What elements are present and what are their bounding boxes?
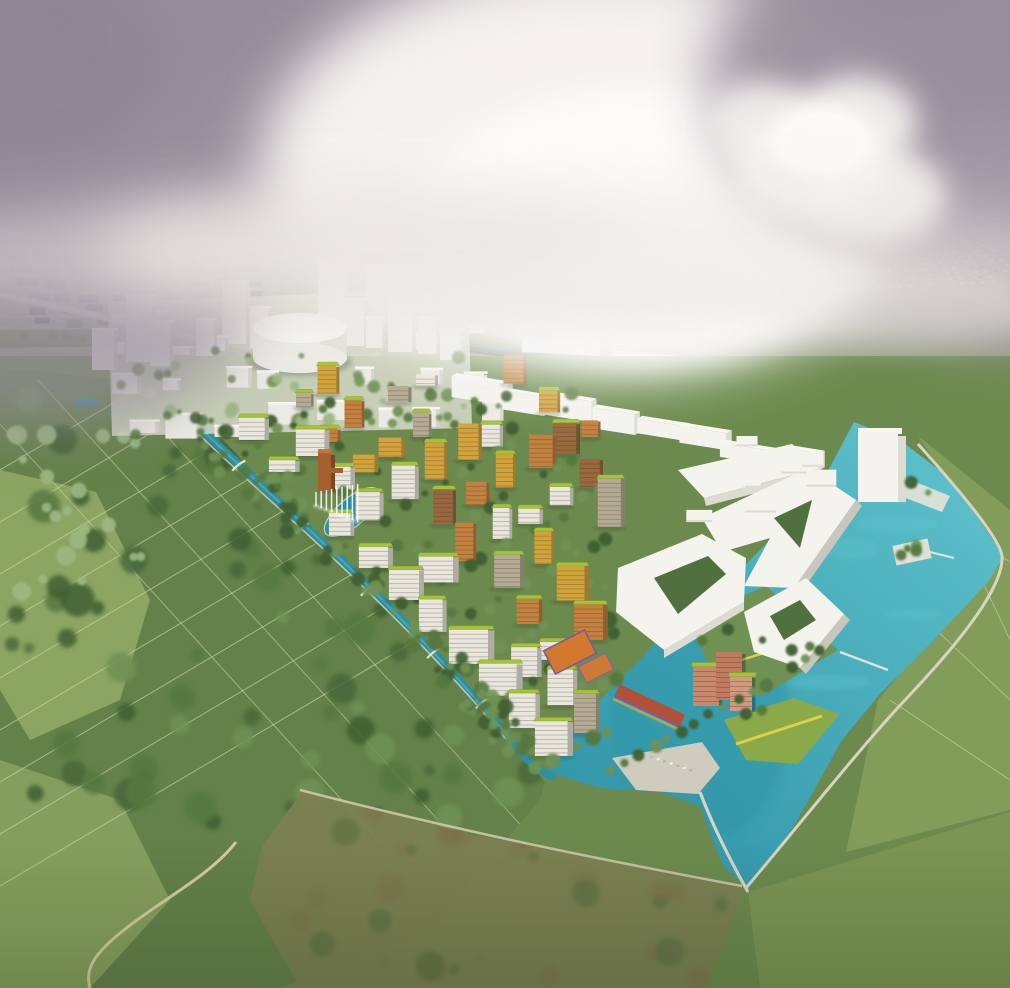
canal-tree (464, 699, 473, 708)
building-floor-line (269, 469, 295, 470)
tree-cluster (313, 657, 327, 671)
tree-cluster (280, 560, 295, 575)
green-roof (517, 505, 543, 509)
tree-cluster (414, 719, 434, 739)
building-floor-line (557, 593, 585, 594)
green-roof (388, 566, 424, 570)
massing-block-side (440, 371, 443, 384)
building-floor-line (455, 527, 473, 528)
district-tree (484, 604, 495, 615)
building-floor-line (379, 442, 402, 443)
canal-tree (259, 474, 266, 481)
green-roof (516, 595, 543, 599)
district-tree (498, 491, 508, 501)
building-floor-line (392, 483, 415, 484)
building-floor-line (392, 488, 415, 489)
building-floor-line (458, 432, 478, 433)
building-floor-line (239, 435, 265, 436)
building-floor-line (455, 545, 473, 546)
building-side-shade (568, 722, 573, 756)
building-floor-line (598, 523, 621, 524)
canal-tree (476, 690, 486, 700)
water-sparkle (854, 514, 939, 532)
waterfront-tree (814, 645, 825, 656)
building-floor-line (493, 512, 510, 513)
massing-block-roof (257, 370, 279, 373)
building-floor-line (345, 409, 362, 410)
building-floor-line (547, 696, 573, 697)
pale-tree (96, 429, 110, 443)
district-tree (422, 490, 429, 497)
building-floor-line (598, 519, 621, 520)
building-side-shade (621, 480, 625, 527)
tree-cluster (365, 733, 395, 763)
building (413, 412, 429, 436)
building-floor-line (413, 430, 429, 431)
district-tree (560, 540, 572, 552)
street-tree (176, 409, 181, 414)
building-floor-line (534, 549, 551, 550)
building-floor-line (425, 460, 445, 461)
tree-cluster (229, 528, 252, 551)
building-floor-line (518, 522, 539, 523)
pale-tree (130, 438, 140, 448)
building (579, 459, 599, 488)
building-floor-line (518, 513, 539, 514)
district-tree (351, 572, 365, 586)
building-floor-line (539, 408, 557, 409)
building-floor-line (416, 379, 435, 380)
building-floor-line (239, 422, 265, 423)
building-floor-line (539, 395, 557, 396)
district-tree (607, 627, 620, 640)
waterfront-tree (734, 694, 744, 704)
canal-tree (436, 675, 450, 689)
tree-cluster (23, 643, 34, 654)
building-floor-line (535, 730, 568, 731)
building-floor-line (547, 678, 573, 679)
green-roof (355, 488, 384, 492)
waterfront-tree (776, 668, 790, 682)
building-floor-line (494, 564, 520, 565)
building-floor-line (317, 384, 336, 385)
building-floor-line (345, 414, 362, 415)
building-floor-line (479, 677, 517, 678)
building-floor-line (458, 459, 478, 460)
building-floor-line (529, 439, 553, 440)
massing-block-roof (355, 366, 374, 369)
white-roof-volume (807, 470, 837, 487)
building-floor-line (496, 472, 513, 473)
building-floor-line (353, 459, 375, 460)
pale-tree (12, 582, 31, 601)
district-tree (476, 404, 488, 416)
street-tree (272, 374, 282, 384)
building-floor-line (535, 739, 568, 740)
building-floor-line (493, 521, 510, 522)
building-floor-line (353, 464, 375, 465)
building-floor-line (413, 435, 429, 436)
building-floor-line (517, 608, 539, 609)
salmon-floor-line (730, 706, 752, 707)
canal-tree (253, 479, 259, 485)
canal-tree (319, 553, 332, 566)
tree-cluster (163, 464, 177, 478)
tree-cluster (82, 771, 105, 794)
building-floor-line (413, 421, 429, 422)
building-floor-line (379, 456, 402, 457)
building-floor-line (535, 743, 568, 744)
tree-cluster (190, 648, 203, 661)
tree-cluster (8, 606, 25, 623)
district-tree (539, 622, 549, 632)
fountain-splash (313, 505, 319, 508)
massing-block-roof (420, 368, 443, 371)
massing-block-roof (129, 419, 160, 422)
tree-cluster (184, 791, 217, 824)
building-side-shade (603, 605, 608, 640)
canal-tree (521, 732, 528, 739)
building-floor-line (535, 725, 568, 726)
district-tree (539, 470, 547, 478)
building-floor-line (419, 617, 443, 618)
waterfront-tree (757, 705, 768, 716)
district-tree (469, 509, 481, 521)
building (574, 693, 596, 732)
green-roof (549, 483, 574, 487)
waterfront-tree (676, 726, 688, 738)
building-floor-line (296, 406, 311, 407)
building-floor-line (511, 651, 537, 652)
building-side-shade (444, 444, 447, 480)
district-tree (427, 388, 433, 394)
building-floor-line (579, 477, 599, 478)
green-roof (344, 397, 365, 401)
building-side-shade (336, 367, 339, 394)
district-tree (562, 406, 568, 412)
fountain-splash (329, 511, 335, 514)
building-floor-line (425, 474, 445, 475)
waterfront-tree (910, 545, 922, 557)
district-tree (400, 499, 412, 511)
building-floor-line (392, 497, 415, 498)
building-floor-line (425, 465, 445, 466)
tree-cluster (326, 618, 345, 637)
building-floor-line (517, 612, 539, 613)
district-tree (577, 490, 589, 502)
building-floor-line (496, 486, 513, 487)
building-floor-line (481, 442, 500, 443)
canal-tree (208, 453, 217, 462)
building-floor-line (296, 397, 311, 398)
tree-cluster (229, 561, 246, 578)
waterfront-tree (905, 476, 918, 489)
building-floor-line (296, 443, 325, 444)
building-floor-line (547, 683, 573, 684)
district-tree (393, 406, 404, 417)
green-roof (495, 451, 516, 455)
canal-tree (391, 608, 398, 615)
building-floor-line (517, 621, 539, 622)
building-floor-line (493, 535, 510, 536)
building-floor-line (392, 479, 415, 480)
building-side-shade (443, 600, 447, 632)
building-floor-line (466, 491, 486, 492)
building-side-shade (408, 387, 411, 402)
canal-tree (488, 720, 498, 730)
district-tree (528, 761, 541, 774)
building (481, 424, 500, 446)
salmon-floor-line (693, 701, 719, 702)
green-roof (418, 596, 447, 600)
district-tree (379, 515, 391, 527)
tree-cluster (390, 643, 409, 662)
water-sparkle (883, 608, 945, 620)
building-floor-line (317, 388, 336, 389)
building-floor-line (419, 626, 443, 627)
waterfront-tree (749, 687, 758, 696)
street-tree (130, 429, 140, 439)
massing-block-side (155, 423, 159, 433)
waterfront-tree (759, 636, 766, 643)
building-floor-line (574, 622, 603, 623)
building-side-shade (570, 488, 573, 506)
cloud (360, 278, 760, 322)
white-roof-volume-shade (736, 444, 757, 446)
building-side-shade (362, 401, 365, 427)
street-tree (163, 411, 172, 420)
salmon-floor-line (716, 662, 742, 663)
green-roof (552, 419, 580, 423)
fountain-splash (355, 521, 361, 524)
building-floor-line (496, 463, 513, 464)
building-side-shade (537, 648, 541, 677)
building-floor-line (433, 512, 453, 513)
building-floor-line (317, 370, 336, 371)
building-floor-line (413, 417, 429, 418)
district-tree (597, 678, 611, 692)
building-floor-line (433, 494, 453, 495)
district-tree (553, 464, 562, 473)
building-floor-line (425, 447, 445, 448)
canal-tree (485, 690, 499, 704)
building-floor-line (496, 481, 513, 482)
building-floor-line (494, 577, 520, 578)
green-roof (418, 553, 459, 557)
tree-cluster (276, 611, 289, 624)
tree-cluster (27, 785, 44, 802)
building-floor-line (574, 613, 603, 614)
building-floor-line (449, 652, 488, 653)
green-roof (448, 626, 494, 630)
building-floor-line (579, 464, 599, 465)
building-floor-line (529, 453, 553, 454)
building-floor-line (598, 492, 621, 493)
fountain-splash (318, 507, 324, 510)
building-side-shade (557, 391, 560, 412)
white-tower-side (898, 436, 906, 502)
building-floor-line (296, 438, 325, 439)
tree-cluster (147, 495, 168, 516)
building-floor-line (598, 510, 621, 511)
pale-tree (78, 523, 90, 535)
green-roof (358, 543, 393, 547)
building-floor-line (329, 535, 351, 536)
building-floor-line (425, 478, 445, 479)
district-tree (496, 403, 502, 409)
canal-tree (281, 491, 292, 502)
tree-cluster (254, 565, 280, 591)
district-tree (282, 471, 293, 482)
tree-cluster (493, 777, 524, 808)
building-floor-line (574, 631, 603, 632)
building-floor-line (550, 491, 570, 492)
tree-cluster (90, 601, 104, 615)
building-floor-line (534, 554, 551, 555)
building-floor-line (493, 517, 510, 518)
building-floor-line (529, 448, 553, 449)
fountain-splash (349, 519, 355, 522)
building-side-shade (453, 557, 459, 582)
building-floor-line (496, 468, 513, 469)
district-tree (242, 451, 249, 458)
building-floor-line (449, 656, 488, 657)
green-roof (508, 690, 540, 694)
canal-tree (213, 466, 225, 478)
building-floor-line (425, 469, 445, 470)
district-tree (272, 423, 283, 434)
building (466, 482, 486, 505)
building-floor-line (419, 622, 443, 623)
pale-tree (71, 483, 87, 499)
district-tree (546, 565, 558, 577)
bottom-shading (0, 840, 1010, 988)
building-floor-line (529, 444, 553, 445)
street-tree (226, 402, 239, 415)
building-floor-line (553, 432, 576, 433)
building-floor-line (534, 563, 551, 564)
massing-block-roof (226, 366, 252, 369)
pale-tree (19, 455, 27, 463)
building (518, 508, 539, 523)
canal-tree (485, 708, 496, 719)
street-tree (246, 356, 254, 364)
building-floor-line (392, 474, 415, 475)
building-floor-line (534, 536, 551, 537)
canal-tree (427, 637, 439, 649)
building-floor-line (582, 429, 598, 430)
building-floor-line (509, 716, 536, 717)
tree-cluster (424, 765, 434, 775)
district-tree (599, 532, 613, 546)
building-floor-line (379, 451, 402, 452)
building (353, 455, 375, 473)
building-floor-line (356, 510, 380, 511)
building-floor-line (598, 483, 621, 484)
canal-tree (297, 517, 309, 529)
building-side-shade (401, 439, 405, 457)
district-tree (585, 730, 601, 746)
district-tree (424, 540, 433, 549)
district-tree (527, 629, 538, 640)
street-tree (436, 414, 443, 421)
canal-tree (197, 428, 205, 436)
building-floor-line (479, 672, 517, 673)
street-tree (461, 403, 467, 409)
building-floor-line (359, 551, 388, 552)
building-floor-line (550, 496, 570, 497)
building-floor-line (239, 440, 265, 441)
pale-tree (49, 510, 61, 522)
pale-tree (56, 546, 75, 565)
building-floor-line (494, 586, 520, 587)
tree-cluster (106, 652, 137, 683)
fountain-splash (334, 513, 340, 516)
tree-cluster (232, 727, 253, 748)
district-tree (559, 512, 569, 522)
tree-cluster (243, 708, 260, 725)
building-floor-line (598, 496, 621, 497)
building-floor-line (419, 613, 443, 614)
building-floor-line (574, 698, 596, 699)
building-floor-line (574, 720, 596, 721)
green-roof (238, 414, 269, 418)
building-side-shade (585, 567, 589, 600)
district-tree (566, 454, 578, 466)
building-side-shade (551, 532, 554, 564)
district-tree (442, 431, 448, 437)
building-floor-line (389, 583, 419, 584)
canal-tree (498, 699, 514, 715)
green-roof (597, 475, 625, 479)
canal-tree (446, 663, 453, 670)
massing-block-roof (464, 371, 488, 374)
building-floor-line (493, 526, 510, 527)
building-side-shade (488, 631, 494, 664)
pale-tree (38, 575, 47, 584)
building-floor-line (388, 399, 408, 400)
building-floor-line (574, 702, 596, 703)
building-side-shade (429, 414, 432, 437)
tree-cluster (443, 764, 463, 784)
waterfront-tree (786, 644, 798, 656)
building-floor-line (579, 482, 599, 483)
white-roof-volume-shade (745, 511, 776, 513)
building-floor-line (509, 711, 536, 712)
salmon-floor-line (716, 667, 742, 668)
building-side-shade (375, 456, 378, 472)
salmon-floor-line (693, 691, 719, 692)
building-floor-line (534, 545, 551, 546)
building-floor-line (433, 503, 453, 504)
pale-tree (42, 503, 52, 513)
building-floor-line (509, 698, 536, 699)
waterfront-tree (650, 740, 663, 753)
corten-top (318, 449, 331, 453)
building-floor-line (458, 450, 478, 451)
green-roof (729, 673, 756, 677)
waterfront-tree (720, 703, 727, 710)
building-side-shade (479, 425, 482, 460)
district-tree (450, 420, 459, 429)
building-floor-line (455, 541, 473, 542)
district-tree (493, 639, 507, 653)
waterfront-tree (925, 489, 931, 495)
building-floor-line (449, 634, 488, 635)
building-floor-line (598, 501, 621, 502)
building-floor-line (455, 532, 473, 533)
building-side-shade (596, 695, 600, 733)
